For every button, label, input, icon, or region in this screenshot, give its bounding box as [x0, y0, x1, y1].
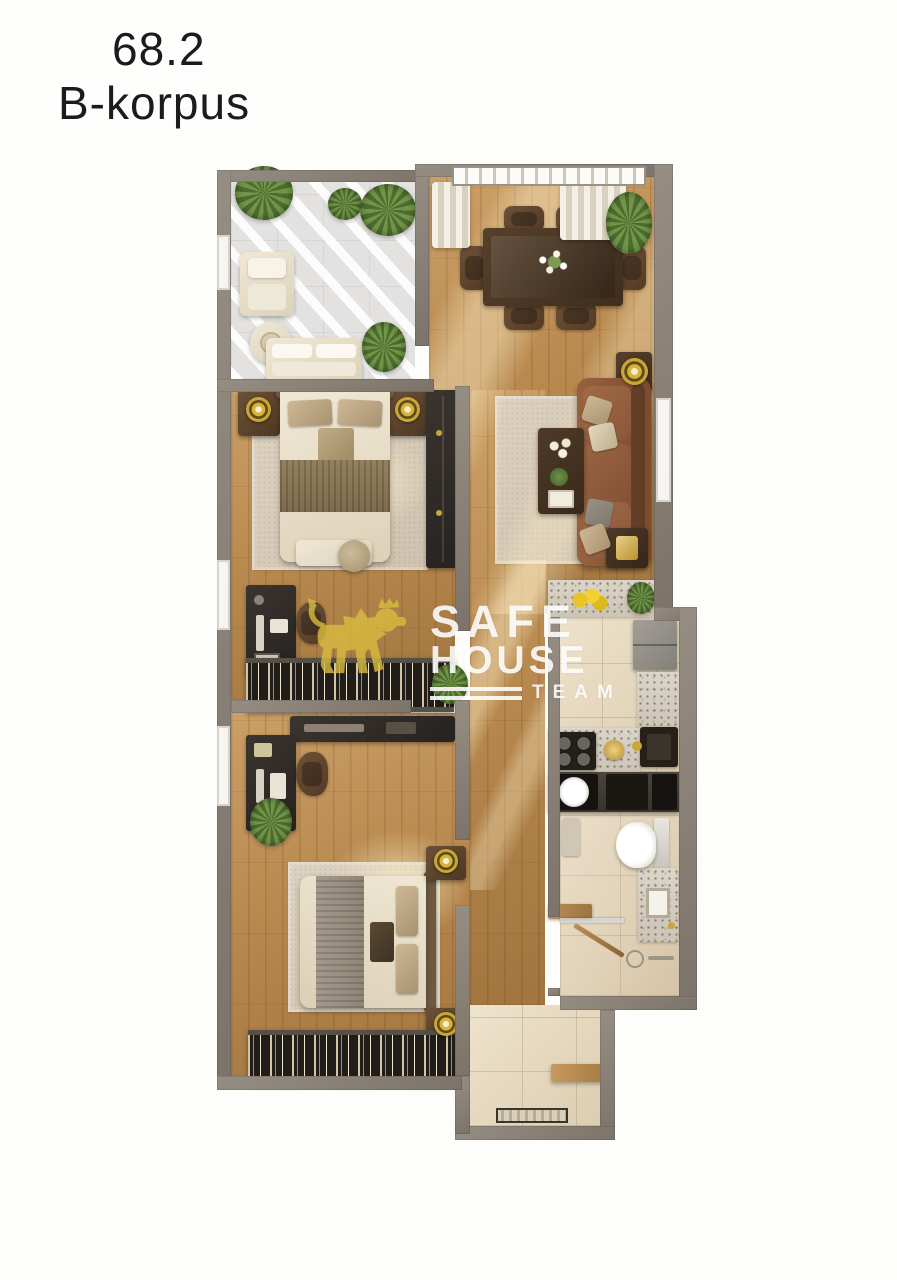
wall-bath-left-stub [548, 988, 560, 996]
terrace-plant-icon [360, 184, 416, 236]
watermark-team-row: TEAM [430, 684, 622, 702]
table-tray [548, 490, 574, 508]
bed-runner-cushion [318, 428, 354, 462]
dining-window-blinds [452, 166, 646, 186]
curtain-left [432, 182, 470, 248]
watermark-brand-top: SAFE [430, 601, 578, 644]
table-lamp-icon [434, 849, 458, 873]
shower-glass-screen [560, 918, 624, 923]
wall-terrace-top [217, 170, 429, 182]
table-lamp-icon [621, 358, 648, 385]
wall-hall-bottom [455, 1126, 615, 1140]
terrace-plant-icon [328, 188, 362, 220]
coffee-table [538, 428, 584, 514]
dining-plant-icon [606, 192, 652, 254]
utility-row [548, 772, 679, 812]
watermark-brand-bottom: HOUSE [430, 642, 589, 679]
sofa-pillow [588, 422, 619, 453]
wall-bedroom2-right-upper [455, 700, 470, 840]
built-in-unit [606, 774, 648, 810]
faucet-icon [668, 922, 675, 929]
terrace-sofa [266, 338, 362, 382]
shower-rail [648, 956, 674, 960]
watermark-lines [430, 687, 522, 700]
wall-bedroom1-right [455, 386, 470, 631]
wall-terrace-right [415, 170, 429, 346]
wall-bath-bottom [560, 996, 697, 1010]
wall-hall-right [600, 1010, 615, 1140]
entry-bench [551, 1064, 603, 1082]
toilet [616, 822, 656, 868]
fridge [633, 620, 677, 670]
bedroom1-bed [280, 392, 390, 562]
shower-drain-icon [626, 950, 644, 968]
kettle-icon [604, 740, 624, 760]
building-label: B-korpus [58, 76, 250, 130]
wall-right-upper [654, 164, 673, 614]
bath-accessories [562, 818, 580, 856]
lounge-chair [240, 252, 294, 316]
wall-right-lower [679, 607, 697, 1010]
terrace-plant-icon [362, 322, 406, 372]
kitchen-counter-right [637, 672, 679, 730]
bed-throw-blanket [316, 876, 364, 1008]
desk-chair [296, 752, 328, 796]
kitchen-plant-icon [627, 582, 655, 614]
toilet-tank [654, 818, 669, 870]
lion-logo-icon [300, 596, 418, 700]
bedroom1-window [217, 560, 230, 630]
bedroom2-window [217, 726, 230, 806]
area-label: 68.2 [112, 22, 206, 76]
flower-centerpiece [529, 244, 575, 284]
table-plant-icon [550, 468, 568, 486]
kitchen-sink [640, 727, 678, 767]
wall-bedrooms-divider [231, 700, 411, 713]
bedroom1-pouf [338, 540, 370, 572]
built-in-unit [652, 774, 677, 810]
living-window [656, 398, 671, 502]
bedroom2-plant-icon [250, 798, 292, 846]
wall-terrace-divider [217, 379, 434, 392]
living-lamp-table-bottom [606, 528, 648, 568]
doormat [496, 1108, 568, 1123]
faucet-icon [632, 741, 642, 751]
wall-left [217, 170, 231, 1090]
floorplan-page: 68.2 B-korpus [0, 0, 897, 1280]
table-lamp-icon [395, 397, 420, 422]
wall-bedroom2-right-lower [455, 905, 470, 1076]
table-lamp-icon [616, 536, 638, 560]
bed-throw-blanket [280, 460, 390, 512]
dining-chair [556, 302, 596, 330]
wall-bedroom2-bottom [217, 1076, 462, 1090]
dining-chair [504, 302, 544, 330]
bed-runner-cushion [370, 922, 394, 962]
bathroom-vanity [638, 868, 678, 942]
vanity-basin [646, 888, 670, 918]
table-flowers [544, 434, 578, 464]
terrace-window [217, 235, 230, 290]
table-lamp-icon [246, 397, 271, 422]
bedroom2-bed [300, 876, 426, 1008]
bedroom2-wall-shelf [290, 716, 455, 742]
watermark-team-label: TEAM [532, 684, 622, 702]
